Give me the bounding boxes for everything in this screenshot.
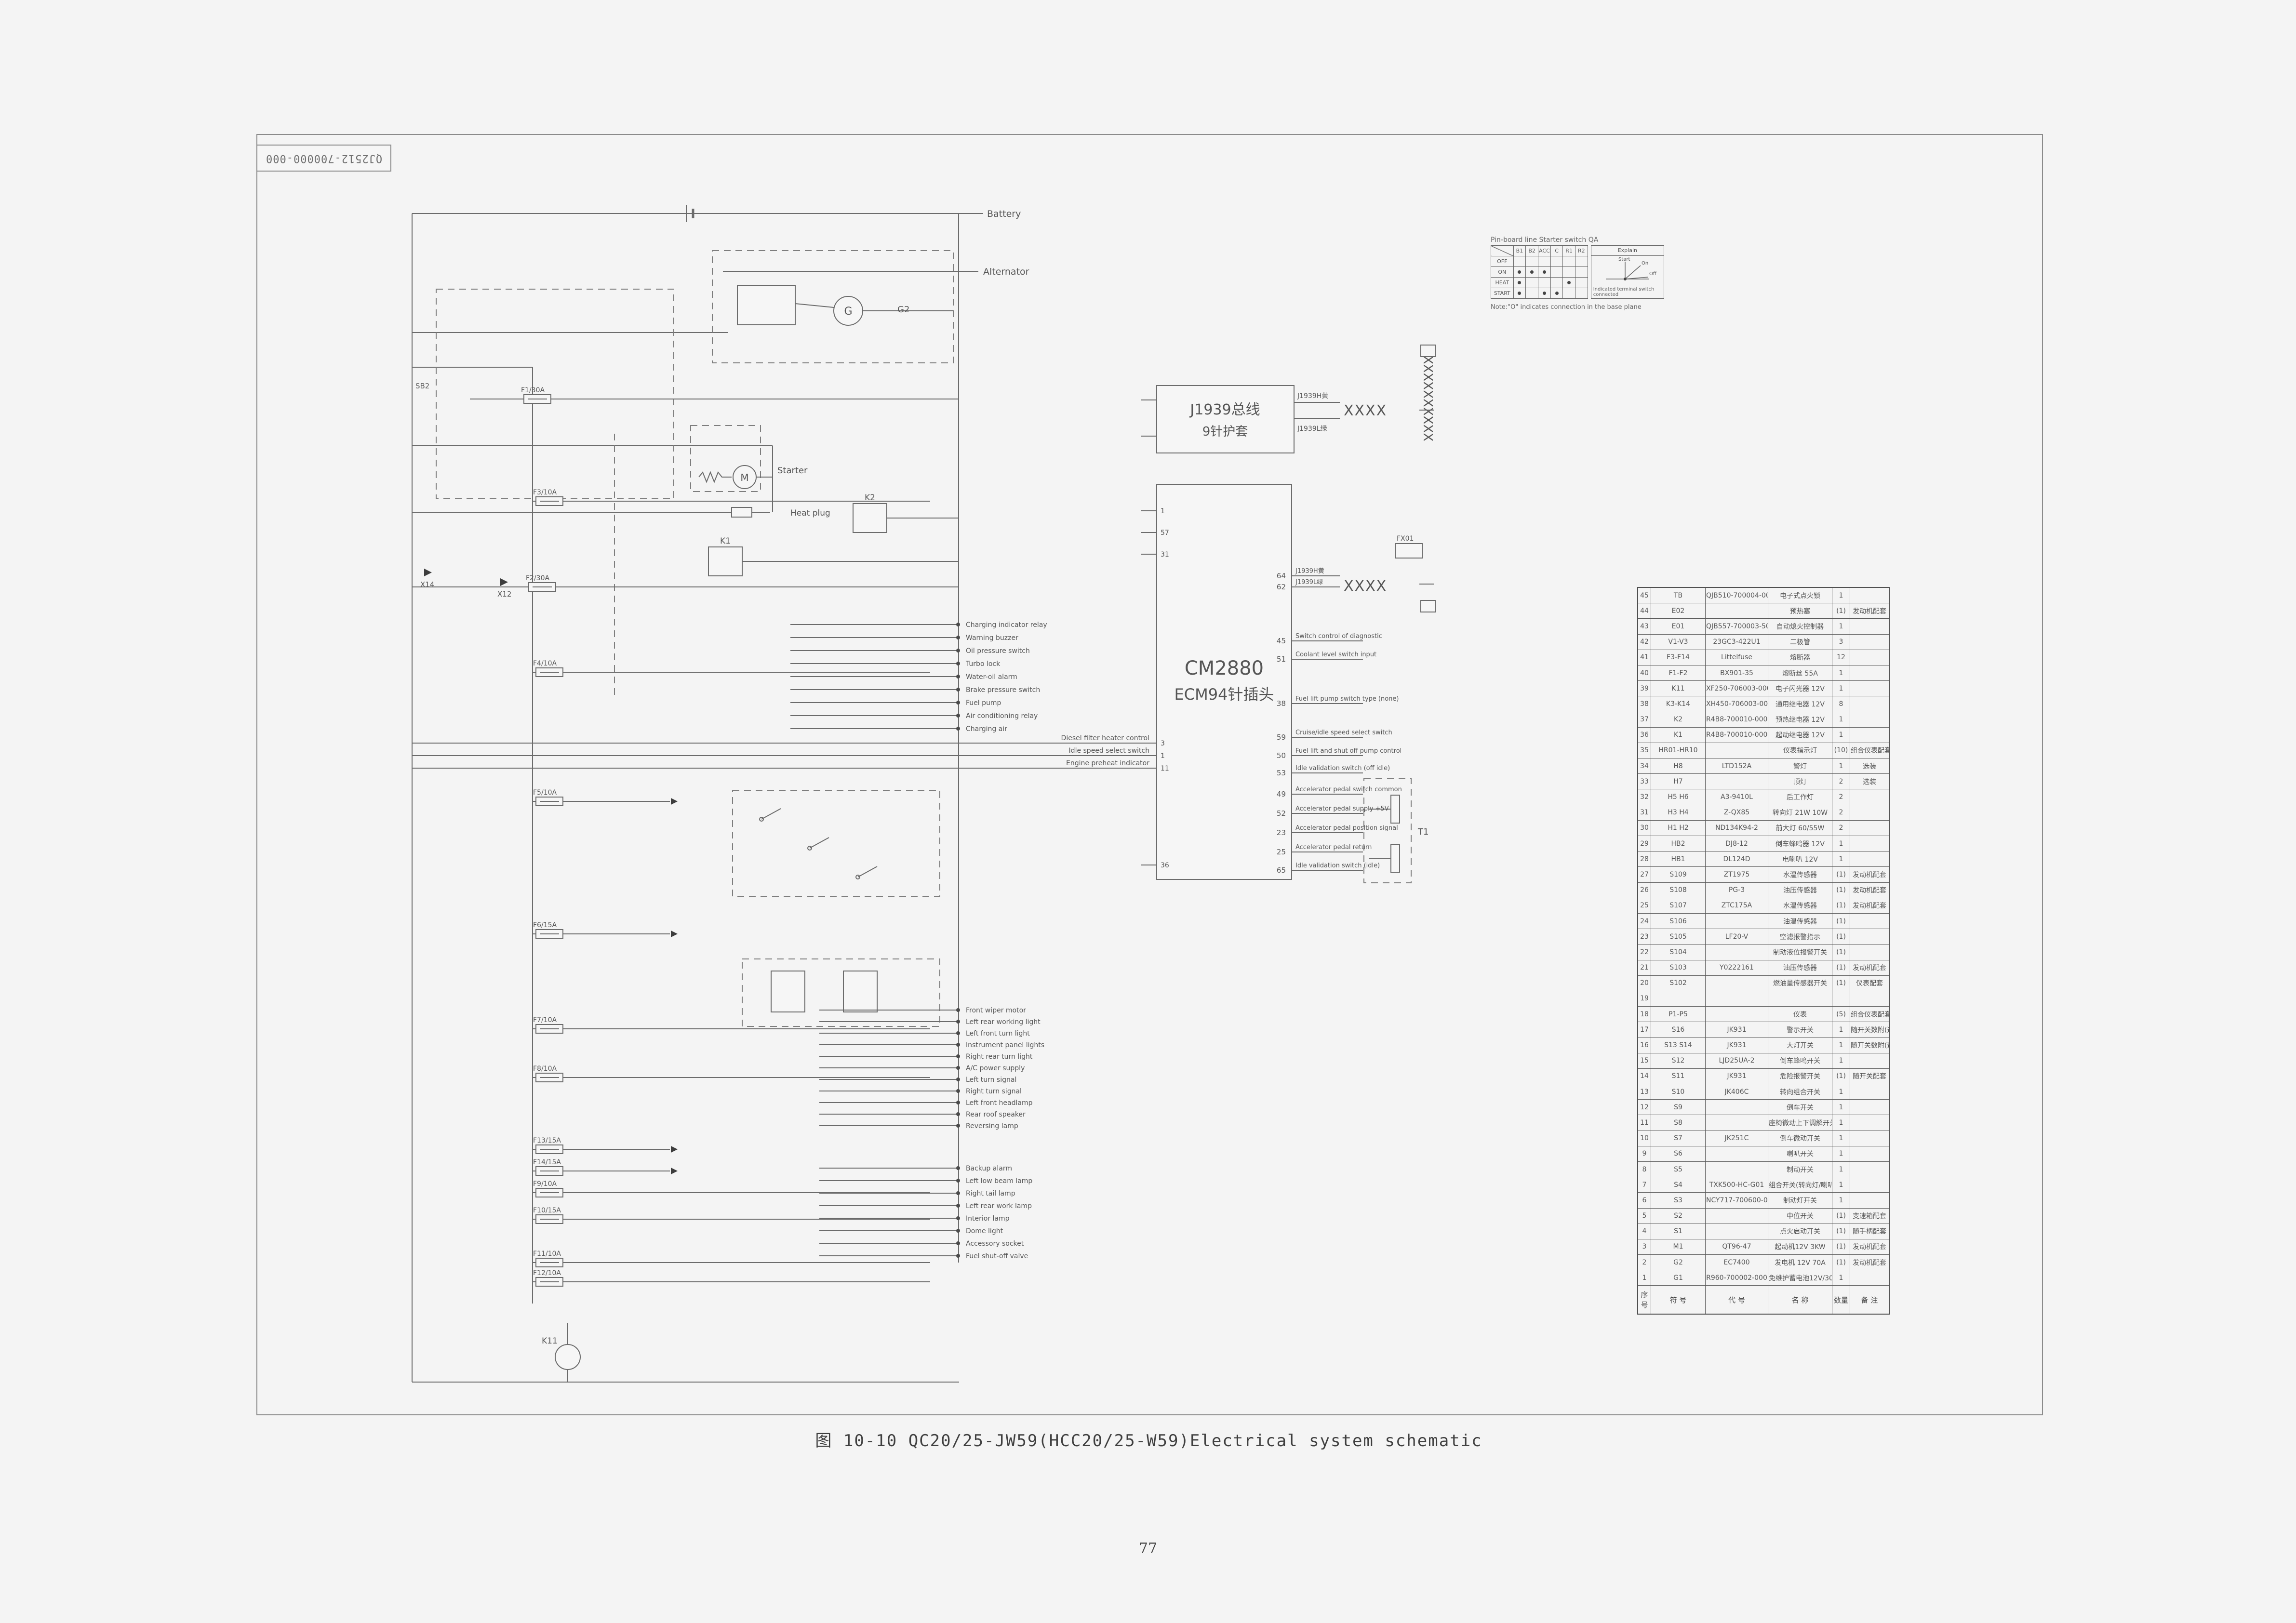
ecm-pin-label: Switch control of diagnostic	[1295, 633, 1382, 640]
alternator-label: Alternator	[983, 266, 1029, 277]
position-name: OFF	[1491, 256, 1514, 267]
parts-cell: 9	[1638, 1146, 1651, 1161]
parts-cell: 8	[1638, 1161, 1651, 1177]
parts-cell: 预热继电器 12V	[1768, 712, 1832, 727]
svg-text:CM2880: CM2880	[1185, 657, 1264, 679]
load-label: Left rear working light	[966, 1018, 1041, 1026]
parts-cell: 2	[1638, 1255, 1651, 1270]
parts-cell: HR01-HR10	[1651, 743, 1706, 758]
parts-cell: (1)	[1832, 945, 1850, 960]
load-label: Interior lamp	[966, 1215, 1010, 1223]
parts-table: 45TBQJB510-700004-000电子式点火锁144E02预热塞(1)发…	[1637, 587, 1880, 1316]
starter-label: Starter	[777, 466, 808, 476]
parts-cell	[1850, 1131, 1890, 1146]
junction-dot	[956, 1254, 960, 1258]
parts-cell: 发电机 12V 70A	[1768, 1255, 1832, 1270]
starter-switch-table: Pin-board line Starter switch QA B1B2ACC…	[1491, 236, 1664, 311]
parts-cell: H5 H6	[1651, 789, 1706, 805]
contact-cell	[1513, 267, 1526, 278]
load-label: Charging indicator relay	[966, 621, 1047, 629]
ecm-pin-number: 49	[1277, 790, 1286, 798]
parts-cell	[1706, 743, 1768, 758]
connector-arrow-icon	[671, 1168, 678, 1174]
parts-cell: 电子闪光器 12V	[1768, 681, 1832, 696]
table-row: 33H7顶灯2选装	[1638, 774, 1889, 789]
parts-cell: 顶灯	[1768, 774, 1832, 789]
parts-cell: NCY717-700600-001	[1706, 1193, 1768, 1208]
svg-text:G: G	[844, 306, 852, 318]
parts-cell: 17	[1638, 1022, 1651, 1038]
parts-cell: S12	[1651, 1053, 1706, 1068]
svg-text:On: On	[1642, 261, 1648, 266]
parts-cell: (1)	[1832, 1224, 1850, 1239]
parts-cell	[1850, 650, 1890, 665]
svg-text:J1939H黄: J1939H黄	[1297, 392, 1328, 400]
parts-cell: 发动机配套	[1850, 882, 1890, 898]
load-label: Left low beam lamp	[966, 1177, 1032, 1185]
parts-header-cell: 序 号	[1638, 1286, 1651, 1315]
parts-cell: XH450-706003-000	[1706, 696, 1768, 712]
parts-cell: 通用继电器 12V	[1768, 696, 1832, 712]
parts-cell	[1706, 1115, 1768, 1131]
connector-arrow-icon	[671, 1146, 678, 1153]
parts-cell: JK406C	[1706, 1084, 1768, 1100]
parts-cell: 燃油量传感器开关	[1768, 975, 1832, 991]
parts-cell: 1	[1832, 758, 1850, 774]
parts-header-cell: 数量	[1832, 1286, 1850, 1315]
ecm-pin-number: 50	[1277, 751, 1286, 760]
parts-cell: 31	[1638, 805, 1651, 820]
load-label: Water-oil alarm	[966, 673, 1017, 681]
ecm-pin-number: 52	[1277, 809, 1286, 818]
load-label: Instrument panel lights	[966, 1041, 1044, 1049]
parts-cell: 23GC3-422U1	[1706, 634, 1768, 650]
table-row: 7S4TXK500-HC-G01组合开关(转向灯/喇叭)1	[1638, 1177, 1889, 1193]
table-row: 12S9倒车开关1	[1638, 1100, 1889, 1115]
parts-cell: 发动机配套	[1850, 898, 1890, 913]
parts-cell: 39	[1638, 681, 1651, 696]
table-row: 44E02预热塞(1)发动机配套	[1638, 603, 1889, 619]
table-row: 37K2R4B8-700010-000预热继电器 12V1	[1638, 712, 1889, 727]
parts-cell: LTD152A	[1706, 758, 1768, 774]
load-label: Accessory socket	[966, 1240, 1024, 1248]
parts-cell: 熔断器	[1768, 650, 1832, 665]
heat-plug-label: Heat plug	[790, 508, 830, 518]
parts-cell: 仪表配套	[1850, 975, 1890, 991]
ecm-pin-number: 3	[1161, 740, 1165, 747]
parts-cell: 前大灯 60/55W	[1768, 820, 1832, 836]
parts-cell: JK931	[1706, 1038, 1768, 1053]
load-label: Right turn signal	[966, 1088, 1022, 1095]
fuse-label: F8/10A	[533, 1065, 557, 1073]
parts-cell	[1850, 929, 1890, 945]
parts-cell: R4B8-700010-000	[1706, 712, 1768, 727]
terminal-header: B2	[1526, 246, 1538, 256]
parts-cell: (1)	[1832, 1255, 1850, 1270]
parts-cell: 1	[1832, 1131, 1850, 1146]
parts-cell: 组合仪表配套	[1850, 1007, 1890, 1022]
table-row: 35HR01-HR10仪表指示灯(10)组合仪表配套	[1638, 743, 1889, 758]
contact-cell	[1550, 288, 1562, 299]
junction-dot	[956, 1191, 960, 1195]
relay-k2	[853, 504, 887, 532]
parts-header-cell: 符 号	[1651, 1286, 1706, 1315]
contact-cell	[1526, 256, 1538, 267]
svg-text:M: M	[740, 472, 748, 483]
parts-cell: 13	[1638, 1084, 1651, 1100]
contact-cell	[1513, 288, 1526, 299]
svg-text:K1: K1	[720, 536, 731, 546]
parts-cell	[1706, 1224, 1768, 1239]
parts-cell	[1850, 851, 1890, 867]
parts-cell: JK251C	[1706, 1131, 1768, 1146]
svg-text:Off: Off	[1649, 271, 1657, 277]
ecm-pin-label: J1939L绿	[1295, 579, 1323, 586]
parts-cell	[1850, 727, 1890, 743]
parts-cell: S4	[1651, 1177, 1706, 1193]
parts-cell: 制动液位报警开关	[1768, 945, 1832, 960]
twisted-pair-icon: XXXXXXXXXX	[1420, 356, 1435, 441]
parts-cell: E01	[1651, 619, 1706, 634]
ecm-pin-label: Accelerator pedal switch common	[1295, 786, 1402, 793]
junction-dot	[956, 1112, 960, 1116]
parts-cell: 警示开关	[1768, 1022, 1832, 1038]
parts-cell: ZT1975	[1706, 867, 1768, 882]
parts-cell: 起动继电器 12V	[1768, 727, 1832, 743]
fuse-label: F9/10A	[533, 1180, 557, 1188]
parts-cell: 23	[1638, 929, 1651, 945]
table-row: 23S105LF20-V空滤报警指示(1)	[1638, 929, 1889, 945]
parts-cell: 1	[1832, 1115, 1850, 1131]
parts-cell: 10	[1638, 1131, 1651, 1146]
parts-cell: (1)	[1832, 898, 1850, 913]
parts-cell	[1850, 634, 1890, 650]
junction-dot	[956, 1054, 960, 1058]
contact-cell	[1538, 267, 1550, 278]
parts-cell: S106	[1651, 913, 1706, 929]
parts-cell: 1	[1832, 619, 1850, 634]
parts-cell: 33	[1638, 774, 1651, 789]
load-label: Reversing lamp	[966, 1122, 1018, 1130]
fuse-label: F13/15A	[533, 1137, 561, 1144]
parts-cell: R4B8-700010-000	[1706, 727, 1768, 743]
parts-cell: 危险报警开关	[1768, 1068, 1832, 1084]
parts-cell: K3-K14	[1651, 696, 1706, 712]
parts-cell: (1)	[1832, 1208, 1850, 1224]
parts-cell: ZTC175A	[1706, 898, 1768, 913]
parts-cell: 起动机12V 3KW	[1768, 1239, 1832, 1254]
starter-contact-grid: B1B2ACCCR1R2OFFONHEATSTART	[1491, 245, 1588, 299]
parts-cell: (10)	[1832, 743, 1850, 758]
junction-dot	[956, 1031, 960, 1035]
ecm-pin-label: Cruise/idle speed select switch	[1295, 729, 1392, 736]
parts-cell: S107	[1651, 898, 1706, 913]
parts-cell	[1850, 681, 1890, 696]
table-row: 31H3 H4Z-QX85转向灯 21W 10W2	[1638, 805, 1889, 820]
scanned-schematic-page: { "sheet": { "corner_label": "QJ2512-700…	[0, 0, 2296, 1623]
contact-cell	[1550, 256, 1562, 267]
table-row: 40F1-F2BX901-35熔断丝 55A1	[1638, 665, 1889, 680]
parts-cell: 36	[1638, 727, 1651, 743]
parts-cell: 18	[1638, 1007, 1651, 1022]
parts-cell: 44	[1638, 603, 1651, 619]
parts-cell	[1850, 1161, 1890, 1177]
table-row: 34H8LTD152A警灯1选装	[1638, 758, 1889, 774]
ecm-pin-label: J1939H黄	[1295, 568, 1324, 575]
parts-cell: 随开关数附(选配)	[1850, 1038, 1890, 1053]
parts-cell: 变速箱配套	[1850, 1208, 1890, 1224]
parts-cell: 2	[1832, 789, 1850, 805]
terminal-header: B1	[1513, 246, 1526, 256]
parts-cell: (1)	[1832, 1239, 1850, 1254]
schematic-drawing: G G2 M Starter Heat plug K1 K2 K11 Batte…	[260, 159, 1494, 1412]
parts-cell: S105	[1651, 929, 1706, 945]
parts-cell: 组合仪表配套	[1850, 743, 1890, 758]
parts-cell	[1850, 805, 1890, 820]
parts-cell: 中位开关	[1768, 1208, 1832, 1224]
parts-cell: DL124D	[1706, 851, 1768, 867]
junction-dot	[956, 1179, 960, 1183]
parts-cell: 12	[1638, 1100, 1651, 1115]
parts-cell: 选装	[1850, 774, 1890, 789]
parts-cell: 37	[1638, 712, 1651, 727]
parts-cell: 制动灯开关	[1768, 1193, 1832, 1208]
parts-cell	[1706, 603, 1768, 619]
parts-cell: 1	[1832, 1270, 1850, 1286]
ecm-pin-number: 65	[1277, 866, 1286, 875]
parts-cell: 1	[1832, 712, 1850, 727]
contact-cell	[1526, 288, 1538, 299]
contact-cell	[1550, 278, 1562, 288]
table-row: 25S107ZTC175A水温传感器(1)发动机配套	[1638, 898, 1889, 913]
parts-cell: Z-QX85	[1706, 805, 1768, 820]
parts-cell: 1	[1832, 1146, 1850, 1161]
parts-cell: 3	[1832, 634, 1850, 650]
parts-cell: F1-F2	[1651, 665, 1706, 680]
contact-cell	[1575, 278, 1588, 288]
table-row: 41F3-F14Littelfuse熔断器12	[1638, 650, 1889, 665]
parts-cell	[1850, 820, 1890, 836]
parts-cell: 1	[1832, 1084, 1850, 1100]
parts-cell	[1850, 789, 1890, 805]
load-label: Backup alarm	[966, 1165, 1012, 1172]
parts-cell	[1706, 913, 1768, 929]
parts-cell: DJ8-12	[1706, 836, 1768, 851]
contact-cell	[1538, 278, 1550, 288]
parts-cell	[1850, 712, 1890, 727]
parts-cell: S5	[1651, 1161, 1706, 1177]
parts-cell: 发动机配套	[1850, 960, 1890, 975]
ecm-pin-number: 64	[1277, 572, 1286, 580]
table-row: 1G1R960-700002-000免维护蓄电池12V/30Ah1	[1638, 1270, 1889, 1286]
svg-text:J1939L绿: J1939L绿	[1297, 425, 1327, 433]
contact-cell	[1563, 288, 1575, 299]
parts-cell: 1	[1832, 1193, 1850, 1208]
svg-text:SB2: SB2	[415, 382, 429, 390]
fuse-label: F1/30A	[521, 386, 545, 394]
position-name: ON	[1491, 267, 1514, 278]
parts-cell: BX901-35	[1706, 665, 1768, 680]
parts-cell: 倒车微动开关	[1768, 1131, 1832, 1146]
parts-cell: 油压传感器	[1768, 960, 1832, 975]
parts-cell: 22	[1638, 945, 1651, 960]
parts-cell: (1)	[1832, 960, 1850, 975]
connector-bottom	[1421, 600, 1435, 612]
parts-cell: 发动机配套	[1850, 1255, 1890, 1270]
svg-text:X12: X12	[497, 590, 511, 599]
parts-cell: S13 S14	[1651, 1038, 1706, 1053]
load-label: Air conditioning relay	[966, 712, 1038, 720]
ecm-pin-number: 38	[1277, 699, 1286, 708]
parts-cell: LJD25UA-2	[1706, 1053, 1768, 1068]
contact-cell	[1538, 288, 1550, 299]
parts-cell: 42	[1638, 634, 1651, 650]
connector-x14: X14	[420, 569, 434, 589]
fuse-label: F4/10A	[533, 660, 557, 667]
svg-text:ECM94针插头: ECM94针插头	[1175, 685, 1274, 704]
glow-plug-symbol	[732, 507, 752, 517]
parts-cell: (1)	[1832, 929, 1850, 945]
key-position-diagram: Start On Off	[1591, 256, 1664, 284]
load-label: Left front headlamp	[966, 1099, 1033, 1107]
contact-cell	[1563, 278, 1575, 288]
parts-cell: S16	[1651, 1022, 1706, 1038]
parts-cell: 倒车开关	[1768, 1100, 1832, 1115]
junction-dot	[956, 1008, 960, 1012]
parts-cell: S6	[1651, 1146, 1706, 1161]
parts-header-row: 序 号符 号代 号名 称数量备 注	[1638, 1286, 1889, 1315]
parts-cell: K1	[1651, 727, 1706, 743]
junction-dot	[956, 1166, 960, 1170]
g2-label: G2	[897, 305, 909, 315]
parts-cell: 41	[1638, 650, 1651, 665]
table-row: 20S102燃油量传感器开关(1)仪表配套	[1638, 975, 1889, 991]
parts-cell: 预热塞	[1768, 603, 1832, 619]
parts-cell: ND134K94-2	[1706, 820, 1768, 836]
parts-cell: 11	[1638, 1115, 1651, 1131]
parts-cell: 20	[1638, 975, 1651, 991]
parts-cell: 1	[1832, 727, 1850, 743]
load-label: Turbo lock	[965, 660, 1001, 668]
table-row: 8S5制动开关1	[1638, 1161, 1889, 1177]
engine-dashed-box	[436, 289, 674, 499]
parts-cell: S9	[1651, 1100, 1706, 1115]
ecm-pin-number: 59	[1277, 733, 1286, 742]
load-label: Rear roof speaker	[966, 1111, 1026, 1118]
parts-cell	[1850, 1100, 1890, 1115]
ecm-pin-number: 31	[1161, 551, 1169, 559]
junction-dot	[956, 1089, 960, 1093]
ecm-pin-number: 1	[1161, 752, 1165, 760]
explain-box: Explain Start On Off Indicated terminal …	[1591, 245, 1664, 299]
table-row: 21S103Y0222161油压传感器(1)发动机配套	[1638, 960, 1889, 975]
figure-title: 图 10-10 QC20/25-JW59(HCC20/25-W59)Electr…	[256, 1427, 2041, 1451]
table-row: 16S13 S14JK931大灯开关1随开关数附(选配)	[1638, 1038, 1889, 1053]
ecm-pin-number: 36	[1161, 862, 1169, 869]
page-number: 77	[0, 1540, 2296, 1557]
table-row: 36K1R4B8-700010-000起动继电器 12V1	[1638, 727, 1889, 743]
table-row: 19	[1638, 991, 1889, 1006]
ecm-pin-label: Accelerator pedal position signal	[1295, 825, 1398, 832]
parts-cell: 组合开关(转向灯/喇叭)	[1768, 1177, 1832, 1193]
load-label: Oil pressure switch	[966, 647, 1030, 655]
parts-cell: 3	[1638, 1239, 1651, 1254]
ecm-pin-number: 62	[1277, 583, 1286, 591]
parts-cell: 2	[1832, 820, 1850, 836]
ecm-input-label: Idle speed select switch	[1069, 747, 1149, 755]
table-row: 3M1QT96-47起动机12V 3KW(1)发动机配套	[1638, 1239, 1889, 1254]
load-label: Brake pressure switch	[966, 686, 1040, 694]
svg-text:9针护套: 9针护套	[1202, 425, 1248, 439]
ecm-pin-label: Fuel lift and shut off pump control	[1295, 747, 1402, 755]
ecm-pin-number: 23	[1277, 828, 1286, 837]
load-label: A/C power supply	[966, 1064, 1025, 1072]
parts-cell: 油压传感器	[1768, 882, 1832, 898]
table-row: 32H5 H6A3-9410L后工作灯2	[1638, 789, 1889, 805]
j1939-connector: J1939总线 9针护套 J1939H黄 J1939L绿	[1141, 386, 1340, 453]
fuse-label: F7/10A	[533, 1016, 557, 1024]
parts-cell: 发动机配套	[1850, 603, 1890, 619]
table-row: 22S104制动液位报警开关(1)	[1638, 945, 1889, 960]
parts-cell	[1706, 1007, 1768, 1022]
junction-dot	[956, 688, 960, 692]
parts-cell: S104	[1651, 945, 1706, 960]
parts-header-cell: 备 注	[1850, 1286, 1890, 1315]
ecm-pin-number: 53	[1277, 769, 1286, 777]
parts-cell	[1850, 1193, 1890, 1208]
junction-dot	[956, 714, 960, 718]
junction-dot	[956, 1216, 960, 1220]
twisted-pair-icon: XXXX	[1344, 402, 1387, 419]
parts-cell: 35	[1638, 743, 1651, 758]
parts-cell: V1-V3	[1651, 634, 1706, 650]
ecm-pin-label: Fuel lift pump switch type (none)	[1295, 695, 1399, 703]
ecm-input-label: Diesel filter heater control	[1061, 734, 1149, 742]
parts-cell: (1)	[1832, 867, 1850, 882]
connector-fx01	[1395, 544, 1422, 558]
parts-cell	[1850, 665, 1890, 680]
parts-cell	[1706, 1208, 1768, 1224]
table-row: 38K3-K14XH450-706003-000通用继电器 12V8	[1638, 696, 1889, 712]
parts-header-cell: 代 号	[1706, 1286, 1768, 1315]
table-row: 28HB1DL124D电喇叭 12V1	[1638, 851, 1889, 867]
parts-cell: 选装	[1850, 758, 1890, 774]
parts-cell: 大灯开关	[1768, 1038, 1832, 1053]
parts-cell: 19	[1638, 991, 1651, 1006]
flasher-k11	[555, 1344, 580, 1370]
parts-cell: Y0222161	[1706, 960, 1768, 975]
table-row: 43E01QJB557-700003-500自动熄火控制器1	[1638, 619, 1889, 634]
parts-cell: 转向组合开关	[1768, 1084, 1832, 1100]
parts-cell: 14	[1638, 1068, 1651, 1084]
parts-cell: H7	[1651, 774, 1706, 789]
parts-cell: S102	[1651, 975, 1706, 991]
contact-cell	[1513, 278, 1526, 288]
junction-dot	[956, 1229, 960, 1233]
table-row: 2G2EC7400发电机 12V 70A(1)发动机配套	[1638, 1255, 1889, 1270]
ecm-pin-number: 45	[1277, 637, 1286, 645]
ecm-input-label: Engine preheat indicator	[1066, 759, 1149, 767]
parts-cell: 发动机配套	[1850, 1239, 1890, 1254]
junction-dot	[956, 727, 960, 731]
load-label: Warning buzzer	[966, 634, 1018, 642]
junction-dot	[956, 636, 960, 639]
parts-cell: TB	[1651, 587, 1706, 603]
parts-cell	[1832, 991, 1850, 1006]
parts-cell	[1706, 991, 1768, 1006]
terminal-header: R1	[1563, 246, 1575, 256]
contact-cell	[1563, 256, 1575, 267]
